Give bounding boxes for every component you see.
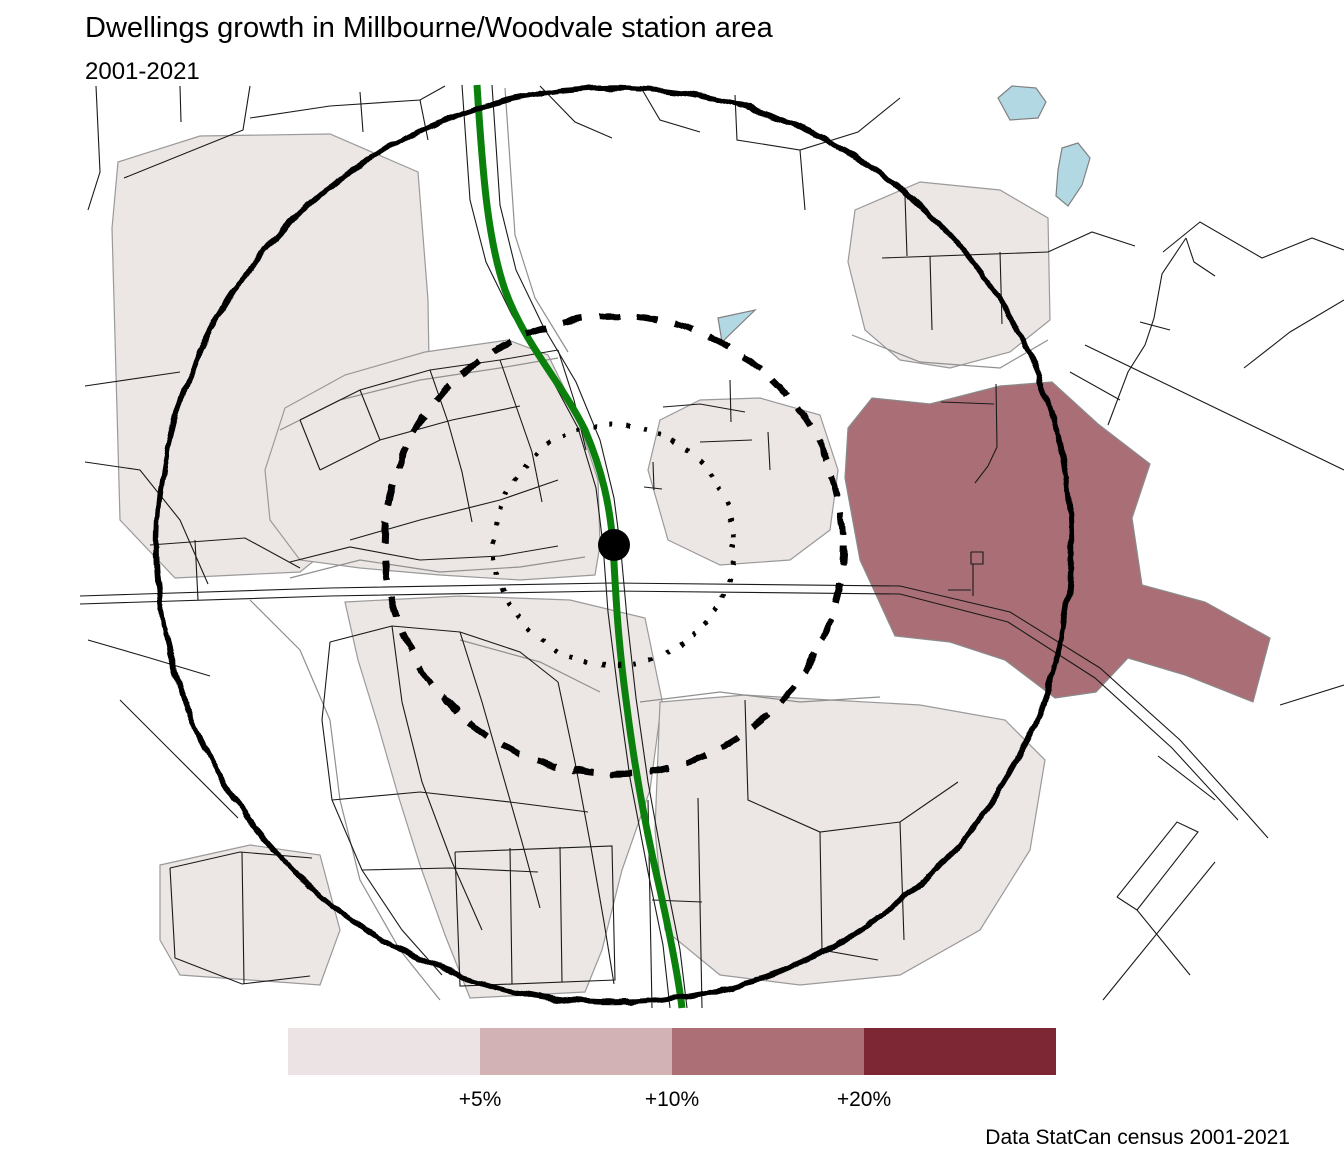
station-dot — [598, 529, 630, 561]
growth-area-polygon — [655, 695, 1045, 985]
legend-label-10pct: +10% — [645, 1088, 699, 1112]
legend-label-20pct: +20% — [837, 1088, 891, 1112]
legend-swatch-3 — [672, 1028, 864, 1075]
page: Dwellings growth in Millbourne/Woodvale … — [0, 0, 1344, 1152]
map-canvas — [0, 0, 1344, 1152]
pond — [718, 310, 755, 342]
data-source-caption: Data StatCan census 2001-2021 — [985, 1126, 1290, 1150]
legend-swatch-1 — [288, 1028, 480, 1075]
legend-swatch-2 — [480, 1028, 672, 1075]
pond — [1056, 143, 1090, 206]
pond — [998, 86, 1046, 120]
legend-label-5pct: +5% — [459, 1088, 502, 1112]
legend-swatch-4 — [864, 1028, 1056, 1075]
legend-colorbar — [288, 1028, 1056, 1075]
growth-area-polygon — [160, 845, 340, 985]
